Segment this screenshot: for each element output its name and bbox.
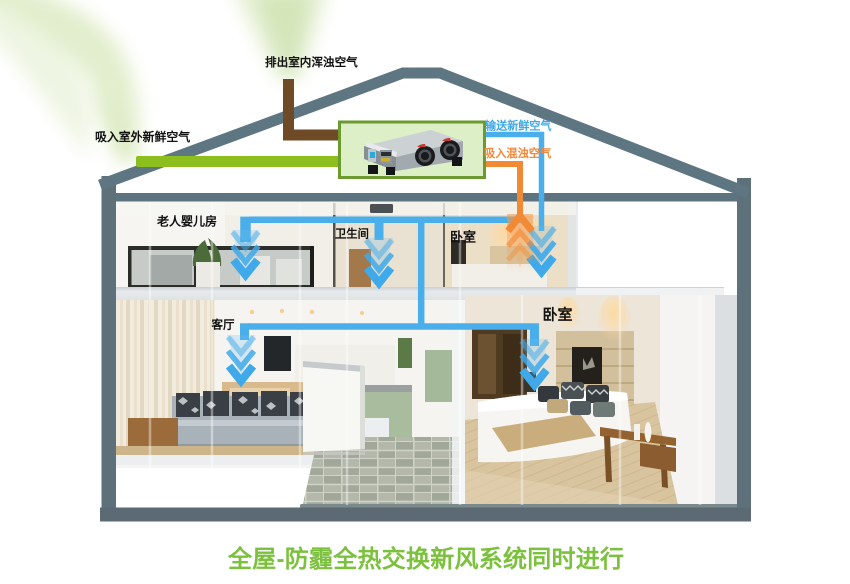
svg-text:排出室内浑浊空气: 排出室内浑浊空气 xyxy=(265,55,358,69)
svg-text:吸入混浊空气: 吸入混浊空气 xyxy=(484,146,552,160)
svg-text:全屋-防霾全热交换新风系统同时进行: 全屋-防霾全热交换新风系统同时进行 xyxy=(227,545,624,573)
svg-text:输送新鲜空气: 输送新鲜空气 xyxy=(485,119,552,133)
svg-text:吸入室外新鲜空气: 吸入室外新鲜空气 xyxy=(95,130,190,144)
svg-text:卧室: 卧室 xyxy=(543,306,573,324)
svg-text:卫生间: 卫生间 xyxy=(335,227,369,241)
svg-text:客厅: 客厅 xyxy=(211,318,235,332)
svg-text:老人婴儿房: 老人婴儿房 xyxy=(157,214,217,229)
svg-text:卧室: 卧室 xyxy=(450,230,476,245)
